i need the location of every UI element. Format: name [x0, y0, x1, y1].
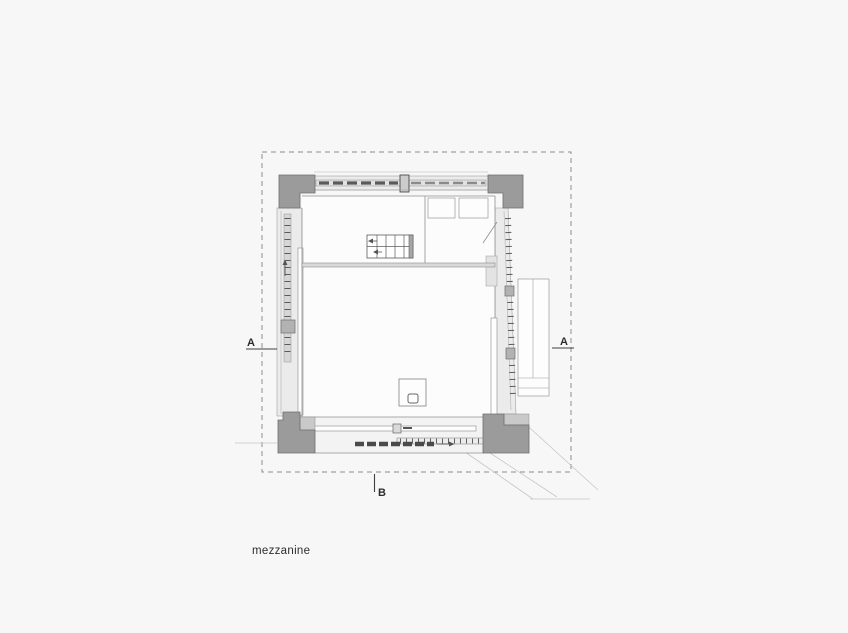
stair-landing-bar — [409, 235, 413, 258]
architectural-sheet: A A B mezzanine — [0, 0, 848, 633]
section-a-right-label: A — [560, 336, 568, 348]
mezzanine-edge — [302, 263, 495, 267]
right-wall-post-lower — [506, 348, 515, 359]
bay-outline — [518, 279, 549, 396]
left-wall-post — [281, 320, 295, 333]
top-center-post — [400, 175, 409, 192]
right-wall-post-upper — [505, 286, 514, 296]
section-b-label: B — [378, 487, 386, 499]
column-bottom-left-step — [300, 417, 315, 430]
right-wall-panel — [486, 256, 497, 286]
building-plan — [277, 172, 549, 453]
column-bottom-right-step — [504, 414, 529, 425]
stove-flue — [408, 394, 418, 403]
right-exterior-bay — [518, 279, 549, 396]
wall-band-bottom — [302, 417, 490, 453]
right-glazing-panel — [491, 318, 497, 415]
stove-symbol — [399, 379, 426, 406]
rooflight-2 — [459, 198, 488, 218]
interior-floor — [302, 196, 495, 417]
floor-plan-drawing: A A B mezzanine — [0, 0, 848, 633]
drawing-title: mezzanine — [252, 545, 310, 557]
rooflight-1 — [428, 198, 455, 218]
stair — [367, 235, 413, 258]
section-a-left-label: A — [247, 337, 255, 349]
bottom-glazing-post — [393, 424, 401, 433]
